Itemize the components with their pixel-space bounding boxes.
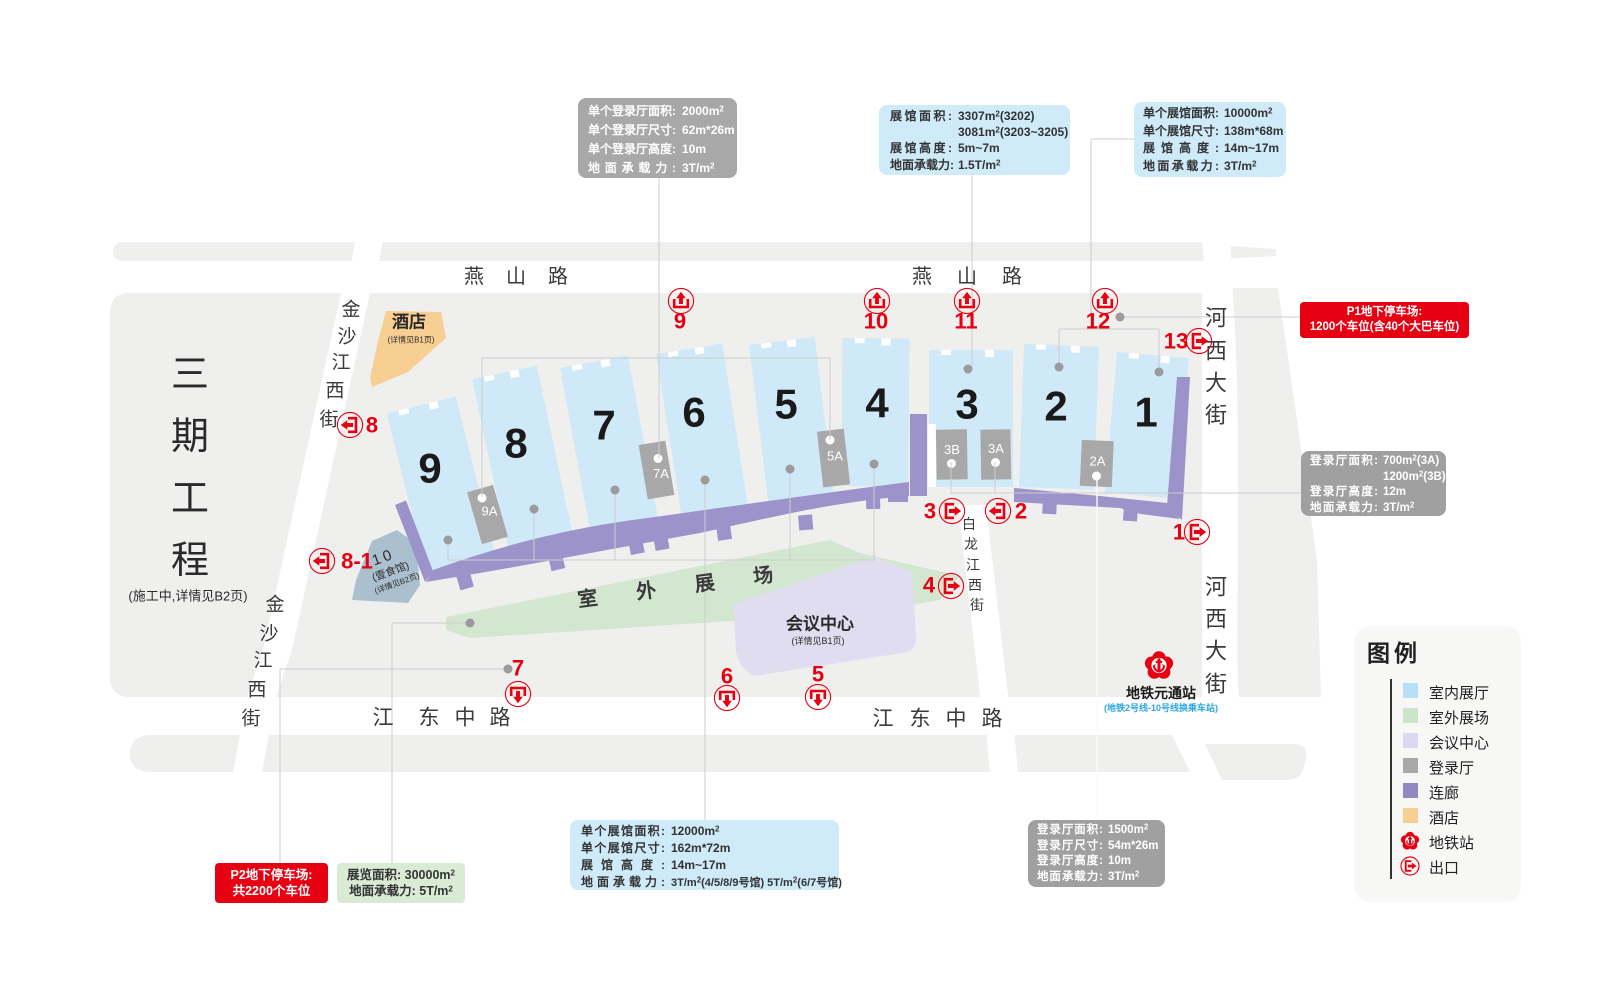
svg-text:河: 河 — [1205, 575, 1227, 600]
svg-text:大: 大 — [1205, 639, 1227, 664]
svg-text:地铁元通站: 地铁元通站 — [1126, 685, 1196, 701]
svg-text:5: 5 — [812, 662, 824, 687]
svg-text:中: 中 — [946, 708, 967, 731]
svg-text:外: 外 — [635, 578, 658, 604]
svg-text:中: 中 — [455, 707, 476, 730]
svg-text:3B: 3B — [944, 442, 960, 457]
svg-text:东: 东 — [910, 708, 931, 731]
svg-text:路: 路 — [1002, 265, 1022, 288]
svg-text:龙: 龙 — [964, 536, 978, 552]
svg-text:江: 江 — [373, 707, 394, 730]
svg-text:街: 街 — [319, 409, 338, 431]
svg-text:5: 5 — [774, 381, 797, 428]
svg-text:3A: 3A — [988, 441, 1004, 456]
svg-text:西: 西 — [325, 381, 344, 402]
svg-text:2A: 2A — [1090, 454, 1106, 469]
svg-text:河: 河 — [1205, 306, 1227, 331]
svg-text:(详情见B1页): (详情见B1页) — [791, 635, 844, 646]
svg-text:6: 6 — [721, 664, 733, 689]
svg-text:8: 8 — [504, 420, 527, 467]
svg-text:白: 白 — [962, 516, 976, 532]
svg-text:路: 路 — [490, 707, 511, 730]
svg-text:(地铁2号线-10号线换乘车站): (地铁2号线-10号线换乘车站) — [1104, 702, 1218, 713]
svg-text:江: 江 — [331, 352, 350, 374]
svg-text:金: 金 — [265, 594, 284, 616]
svg-text:程: 程 — [171, 540, 209, 582]
svg-text:街: 街 — [970, 597, 984, 613]
svg-text:10: 10 — [864, 309, 888, 334]
svg-text:场: 场 — [752, 563, 775, 588]
svg-text:8-1: 8-1 — [341, 549, 373, 574]
svg-text:8: 8 — [366, 413, 378, 438]
svg-text:街: 街 — [1205, 672, 1227, 697]
svg-text:3: 3 — [924, 499, 936, 524]
svg-text:1: 1 — [1173, 520, 1185, 545]
svg-text:工: 工 — [171, 478, 209, 520]
svg-text:西: 西 — [968, 577, 982, 593]
svg-text:路: 路 — [548, 265, 568, 288]
svg-text:11: 11 — [954, 309, 977, 334]
svg-text:9: 9 — [418, 445, 441, 492]
svg-text:东: 东 — [419, 707, 440, 730]
svg-text:金: 金 — [341, 299, 360, 321]
svg-text:期: 期 — [171, 416, 209, 458]
svg-text:大: 大 — [1205, 371, 1227, 396]
svg-text:6: 6 — [682, 389, 705, 436]
svg-text:会议中心: 会议中心 — [786, 614, 854, 634]
svg-text:(施工中,详情见B2页): (施工中,详情见B2页) — [128, 589, 247, 604]
svg-text:沙: 沙 — [259, 624, 278, 645]
svg-text:展: 展 — [693, 572, 716, 596]
svg-text:西: 西 — [1205, 607, 1227, 632]
svg-text:室: 室 — [576, 585, 599, 611]
svg-text:燕: 燕 — [464, 265, 484, 288]
svg-text:路: 路 — [982, 708, 1003, 731]
svg-text:7: 7 — [512, 656, 524, 681]
svg-text:1: 1 — [1134, 389, 1157, 436]
svg-text:三: 三 — [171, 354, 209, 396]
svg-text:山: 山 — [957, 265, 977, 288]
svg-text:2: 2 — [1044, 383, 1067, 430]
svg-text:街: 街 — [1205, 403, 1227, 428]
svg-text:9A: 9A — [482, 504, 498, 519]
svg-text:沙: 沙 — [337, 327, 356, 348]
svg-text:燕: 燕 — [912, 265, 932, 288]
svg-text:街: 街 — [241, 708, 260, 730]
svg-text:13: 13 — [1164, 329, 1188, 354]
svg-text:江: 江 — [873, 708, 894, 731]
svg-text:2: 2 — [1015, 499, 1027, 524]
svg-text:9: 9 — [674, 309, 686, 334]
svg-text:江: 江 — [253, 650, 272, 672]
svg-text:4: 4 — [865, 380, 889, 427]
svg-text:5A: 5A — [827, 449, 843, 464]
svg-text:(详情见B1页): (详情见B1页) — [387, 335, 434, 345]
svg-text:7: 7 — [592, 402, 615, 449]
svg-text:江: 江 — [966, 557, 980, 573]
svg-text:3: 3 — [955, 381, 978, 428]
svg-text:西: 西 — [247, 680, 266, 701]
svg-text:12: 12 — [1086, 309, 1110, 334]
svg-text:酒店: 酒店 — [392, 312, 426, 332]
svg-text:4: 4 — [923, 573, 936, 598]
svg-text:7A: 7A — [653, 466, 669, 481]
svg-text:山: 山 — [506, 265, 526, 288]
